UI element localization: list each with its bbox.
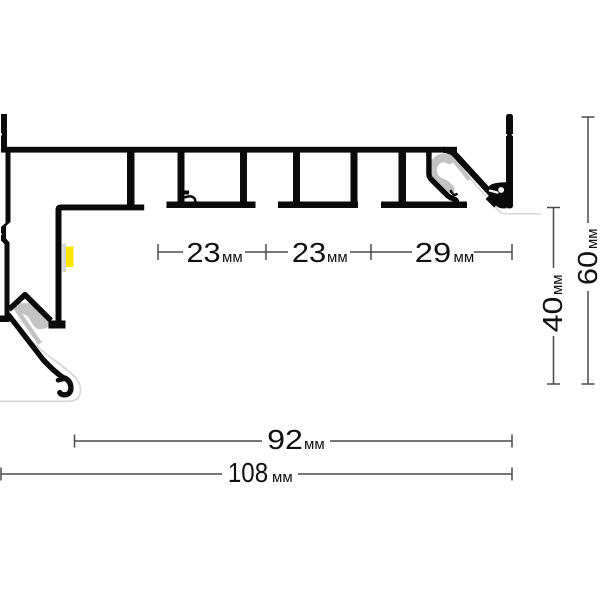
svg-text:мм: мм xyxy=(304,436,325,453)
svg-text:108: 108 xyxy=(228,456,268,488)
svg-text:29: 29 xyxy=(415,237,451,268)
svg-text:мм: мм xyxy=(584,228,600,249)
svg-text:60: 60 xyxy=(572,251,600,285)
svg-text:мм: мм xyxy=(327,249,348,266)
svg-text:92: 92 xyxy=(267,425,303,456)
svg-text:мм: мм xyxy=(272,469,293,486)
svg-text:23: 23 xyxy=(292,237,326,268)
svg-text:мм: мм xyxy=(222,249,243,266)
svg-text:23: 23 xyxy=(186,237,220,268)
svg-text:40: 40 xyxy=(538,297,569,333)
svg-text:мм: мм xyxy=(454,249,475,266)
svg-text:мм: мм xyxy=(549,274,566,295)
